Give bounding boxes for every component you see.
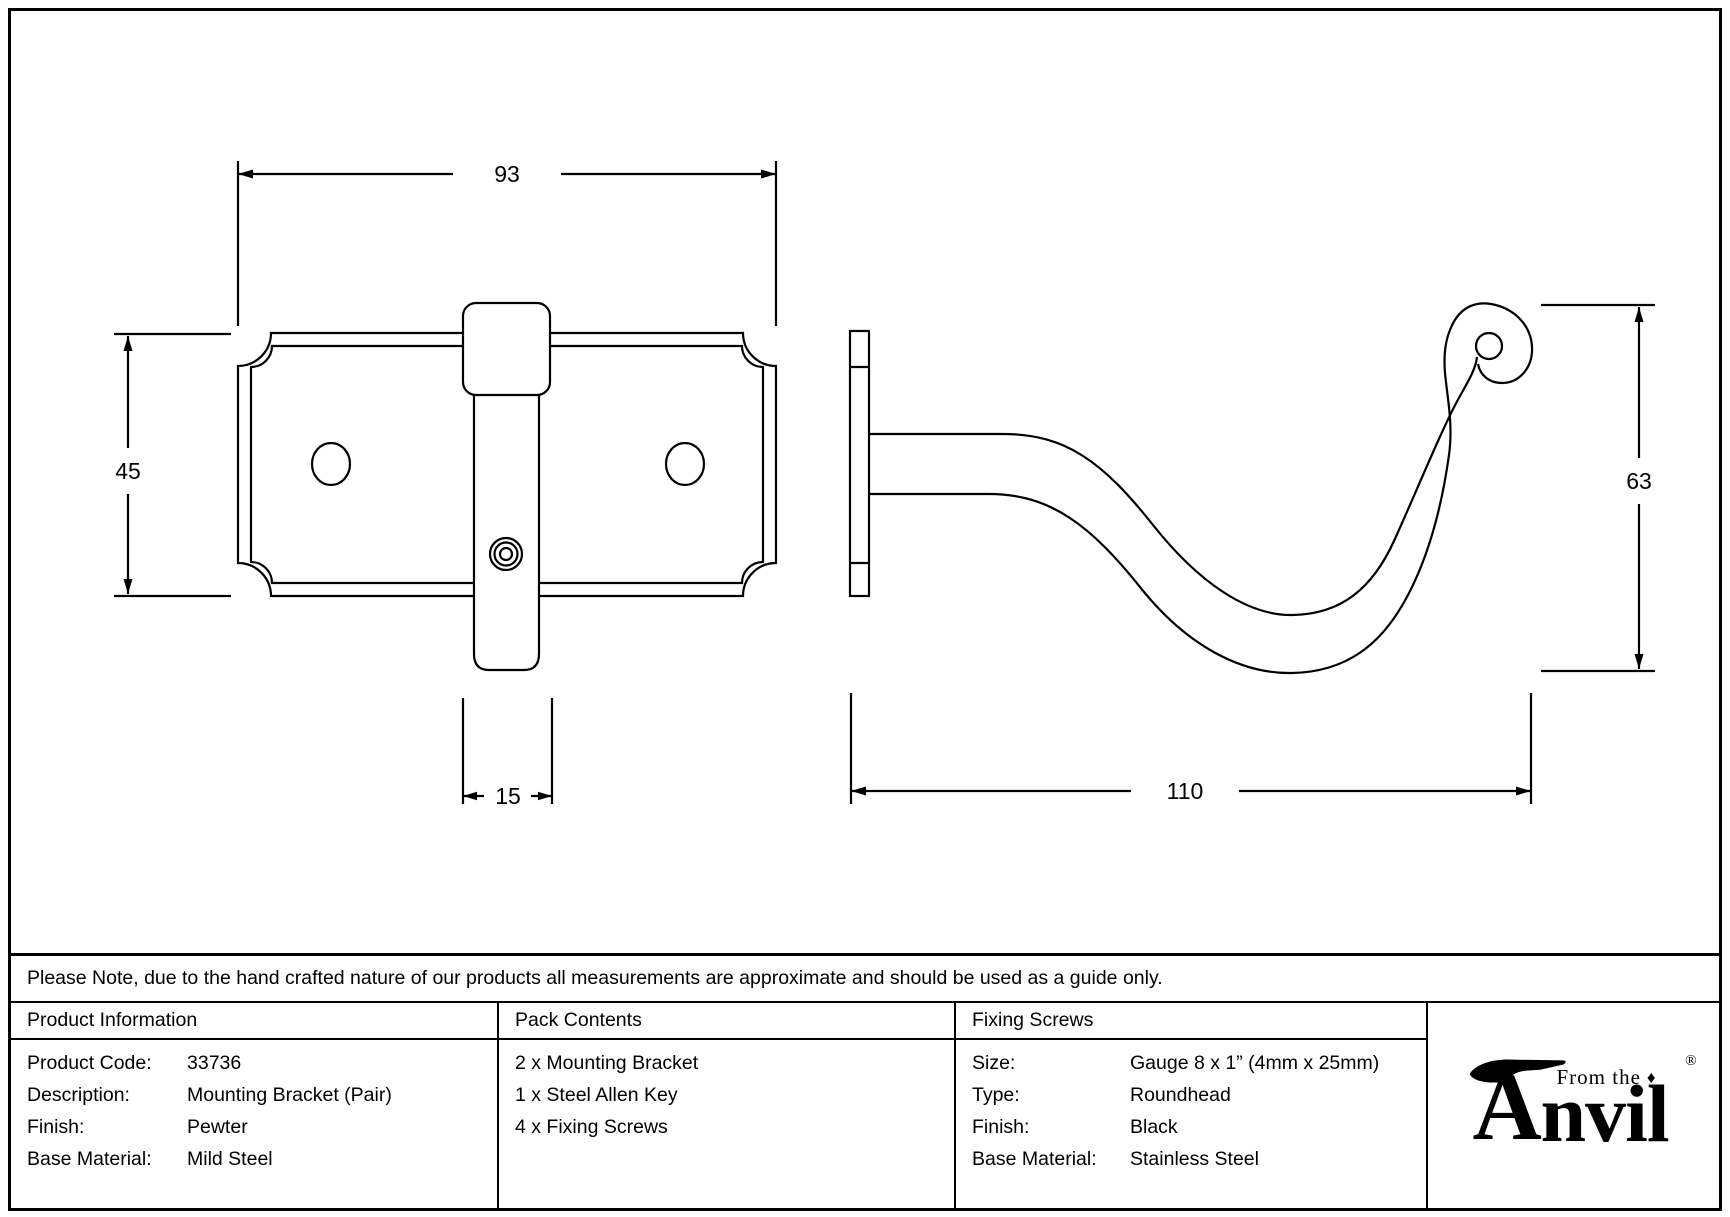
row-value: 33736 (187, 1052, 497, 1075)
fixing-screws-body: Size: Gauge 8 x 1” (4mm x 25mm) Type: Ro… (954, 1040, 1426, 1208)
row-label: Description: (27, 1084, 187, 1107)
bracket-cube (463, 303, 550, 395)
diamond-icon: ♦ (1647, 1068, 1657, 1087)
row-value: Gauge 8 x 1” (4mm x 25mm) (1130, 1052, 1426, 1075)
measurement-note: Please Note, due to the hand crafted nat… (11, 953, 1719, 1001)
wall-plate-edge (850, 331, 869, 596)
side-view (850, 303, 1655, 804)
from-the-anvil-logo: A nvil From the♦ ® (1449, 1051, 1699, 1161)
product-info-table: Product Information Pack Contents Fixing… (11, 1001, 1719, 1208)
row-value: Mild Steel (187, 1148, 497, 1171)
sheet-frame: 93 45 15 63 110 Please Note, due to the … (8, 8, 1722, 1211)
pack-item: 2 x Mounting Bracket (515, 1052, 954, 1075)
row-value: Pewter (187, 1116, 497, 1139)
dim-label-height-63: 63 (1626, 468, 1652, 494)
screw-hole-left (312, 443, 350, 485)
row-label: Size: (972, 1052, 1130, 1075)
registered-trademark-icon: ® (1685, 1053, 1696, 1070)
header-pack-contents: Pack Contents (497, 1003, 954, 1040)
set-screw (490, 538, 522, 570)
row-label: Type: (972, 1084, 1130, 1107)
hook-inner-edge (869, 357, 1477, 615)
technical-drawing: 93 45 15 63 110 (11, 11, 1715, 953)
row-label: Finish: (27, 1116, 187, 1139)
dim-label-height-45: 45 (115, 458, 141, 484)
dim-label-stem-15: 15 (495, 783, 521, 809)
header-product-information: Product Information (11, 1003, 497, 1040)
row-label: Base Material: (972, 1148, 1130, 1171)
note-text: Please Note, due to the hand crafted nat… (27, 967, 1163, 990)
pack-contents-body: 2 x Mounting Bracket 1 x Steel Allen Key… (497, 1040, 954, 1208)
row-label: Product Code: (27, 1052, 187, 1075)
row-value: Stainless Steel (1130, 1148, 1426, 1171)
row-value: Mounting Bracket (Pair) (187, 1084, 497, 1107)
row-value: Black (1130, 1116, 1426, 1139)
row-value: Roundhead (1130, 1084, 1426, 1107)
header-fixing-screws: Fixing Screws (954, 1003, 1426, 1040)
logo-tagline: From the♦ (1557, 1065, 1651, 1090)
logo-letter-a: A (1473, 1059, 1538, 1155)
technical-drawing-area: 93 45 15 63 110 (11, 11, 1719, 953)
scroll-eye (1476, 333, 1502, 359)
brand-logo-cell: A nvil From the♦ ® (1426, 1003, 1719, 1208)
product-spec-sheet: 93 45 15 63 110 Please Note, due to the … (0, 0, 1730, 1217)
row-label: Base Material: (27, 1148, 187, 1171)
row-label: Finish: (972, 1116, 1130, 1139)
dim-label-width-93: 93 (494, 161, 520, 187)
pack-item: 1 x Steel Allen Key (515, 1084, 954, 1107)
pack-item: 4 x Fixing Screws (515, 1116, 954, 1139)
dim-label-depth-110: 110 (1167, 778, 1204, 804)
front-view (114, 161, 776, 804)
screw-hole-right (666, 443, 704, 485)
bracket-stem (474, 388, 539, 670)
product-information-body: Product Code: 33736 Description: Mountin… (11, 1040, 497, 1208)
hook-outer-edge (869, 303, 1532, 673)
